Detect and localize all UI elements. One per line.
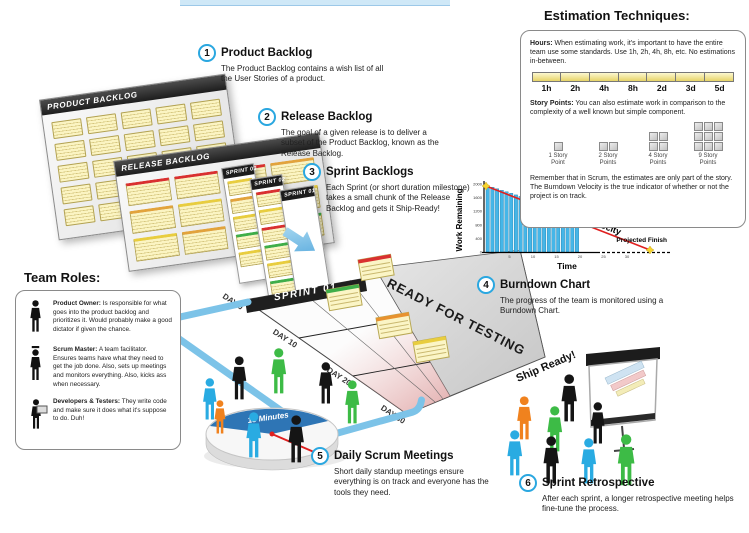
svg-text:1600: 1600 bbox=[473, 195, 483, 200]
ruler-segment: 5d bbox=[705, 72, 734, 93]
story-point-cubes: 1 Story Point2 Story Points4 Story Point… bbox=[530, 122, 736, 167]
svg-text:5: 5 bbox=[508, 254, 511, 259]
sticky-note bbox=[54, 140, 86, 161]
sticky-note bbox=[124, 130, 156, 151]
step-6-body: After each sprint, a longer retrospectiv… bbox=[542, 494, 737, 515]
sticky-note bbox=[129, 205, 176, 234]
estimation-techniques-box: Hours: When estimating work, it's import… bbox=[520, 30, 746, 228]
step-6-number: 6 bbox=[519, 474, 537, 492]
story-point-group: 4 Story Points bbox=[641, 132, 675, 167]
role-scrum-master-text: Scrum Master: A team facilitator. Ensure… bbox=[53, 346, 172, 389]
step-5-daily-scrum-meetings: 5 Daily Scrum Meetings Short daily stand… bbox=[311, 447, 489, 498]
svg-text:15: 15 bbox=[554, 254, 559, 259]
ruler-segment: 2d bbox=[647, 72, 676, 93]
hours-ruler: 1h2h4h8h2d3d5d bbox=[532, 72, 734, 93]
x-axis-label: Time bbox=[557, 261, 577, 271]
step-1-title: Product Backlog bbox=[221, 47, 312, 59]
svg-text:800: 800 bbox=[475, 222, 482, 227]
step-2-release-backlog: 2 Release Backlog The goal of a given re… bbox=[258, 108, 446, 159]
sticky-note bbox=[86, 113, 118, 134]
step-2-title: Release Backlog bbox=[281, 111, 372, 123]
sticky-note bbox=[57, 162, 89, 183]
estimation-hours-text: Hours: When estimating work, it's import… bbox=[530, 39, 736, 67]
step-4-number: 4 bbox=[477, 276, 495, 294]
step-3-sprint-backlogs: 3 Sprint Backlogs Each Sprint (or short … bbox=[303, 163, 471, 214]
person-icon bbox=[562, 374, 577, 421]
svg-text:20: 20 bbox=[578, 254, 583, 259]
sticky-note bbox=[158, 125, 190, 146]
person-icon bbox=[203, 378, 216, 419]
ruler-segment: 8h bbox=[619, 72, 648, 93]
svg-text:1200: 1200 bbox=[473, 209, 483, 214]
step-1-product-backlog: 1 Product Backlog The Product Backlog co… bbox=[198, 44, 390, 85]
sticky-note bbox=[64, 205, 96, 226]
burndown-y-ticks: 2000160012008004000 bbox=[473, 182, 483, 255]
step-4-body: The progress of the team is monitored us… bbox=[500, 296, 689, 317]
sticky-note bbox=[89, 135, 121, 156]
clock-center-icon bbox=[270, 432, 275, 437]
step-2-body: The goal of a given release is to delive… bbox=[281, 128, 446, 159]
scrum-master-icon bbox=[24, 346, 46, 389]
person-icon bbox=[232, 356, 246, 399]
sticky-note bbox=[155, 103, 187, 124]
story-point-group: 9 Story Points bbox=[691, 122, 725, 167]
step-3-number: 3 bbox=[303, 163, 321, 181]
ruler-segment: 4h bbox=[590, 72, 619, 93]
developer-icon bbox=[24, 398, 46, 435]
role-developers-testers: Developers & Testers: They write code an… bbox=[24, 398, 172, 435]
burndown-x-ticks: 51015202530 bbox=[508, 254, 630, 259]
ruler-segment: 3d bbox=[676, 72, 705, 93]
step-4-burndown-chart: 4 Burndown Chart The progress of the tea… bbox=[477, 276, 689, 317]
sticky-note bbox=[178, 198, 225, 227]
step-6-title: Sprint Retrospective bbox=[542, 477, 654, 489]
step-2-number: 2 bbox=[258, 108, 276, 126]
svg-text:30: 30 bbox=[625, 254, 630, 259]
svg-text:10: 10 bbox=[531, 254, 536, 259]
role-product-owner-text: Product Owner: Is responsible for what g… bbox=[53, 300, 172, 337]
top-decorative-strip bbox=[180, 0, 450, 6]
step-3-title: Sprint Backlogs bbox=[326, 166, 414, 178]
svg-text:400: 400 bbox=[475, 236, 482, 241]
team-roles-box: Product Owner: Is responsible for what g… bbox=[15, 290, 181, 450]
svg-text:2000: 2000 bbox=[473, 182, 483, 187]
role-scrum-master: Scrum Master: A team facilitator. Ensure… bbox=[24, 346, 172, 389]
person-icon bbox=[271, 348, 286, 393]
step-5-title: Daily Scrum Meetings bbox=[334, 450, 454, 462]
step-3-body: Each Sprint (or short duration milestone… bbox=[326, 183, 471, 214]
story-point-group: 2 Story Points bbox=[591, 142, 625, 167]
estimation-hours-label: Hours: bbox=[530, 40, 553, 47]
step-5-number: 5 bbox=[311, 447, 329, 465]
step-1-number: 1 bbox=[198, 44, 216, 62]
sticky-note bbox=[190, 99, 222, 120]
product-owner-icon bbox=[24, 300, 46, 337]
step-1-body: The Product Backlog contains a wish list… bbox=[221, 64, 390, 85]
story-point-group: 1 Story Point bbox=[541, 142, 575, 167]
estimation-story-label: Story Points: bbox=[530, 100, 574, 107]
estimation-story-text: Story Points: You can also estimate work… bbox=[530, 99, 736, 117]
team-roles-title: Team Roles: bbox=[24, 270, 100, 285]
sticky-note bbox=[125, 177, 172, 206]
person-icon bbox=[517, 396, 531, 439]
estimation-footer-text: Remember that in Scrum, the estimates ar… bbox=[530, 174, 736, 202]
sticky-note bbox=[174, 171, 221, 200]
sticky-note bbox=[51, 118, 83, 139]
svg-text:25: 25 bbox=[601, 254, 606, 259]
role-product-owner: Product Owner: Is responsible for what g… bbox=[24, 300, 172, 337]
step-5-body: Short daily standup meetings ensure ever… bbox=[334, 467, 489, 498]
ruler-segment: 1h bbox=[532, 72, 561, 93]
step-4-title: Burndown Chart bbox=[500, 279, 590, 291]
step-6-sprint-retrospective: 6 Sprint Retrospective After each sprint… bbox=[519, 474, 737, 515]
sticky-note bbox=[121, 108, 153, 129]
scrum-infographic: PRODUCT BACKLOG RELEASE BACKLOG SPRINT 0… bbox=[0, 0, 749, 533]
ruler-segment: 2h bbox=[561, 72, 590, 93]
estimation-techniques-title: Estimation Techniques: bbox=[544, 8, 690, 23]
role-developers-text: Developers & Testers: They write code an… bbox=[53, 398, 172, 435]
sticky-note bbox=[60, 183, 92, 204]
projected-finish-label: Projected Finish bbox=[616, 237, 667, 244]
sticky-note bbox=[193, 120, 225, 141]
